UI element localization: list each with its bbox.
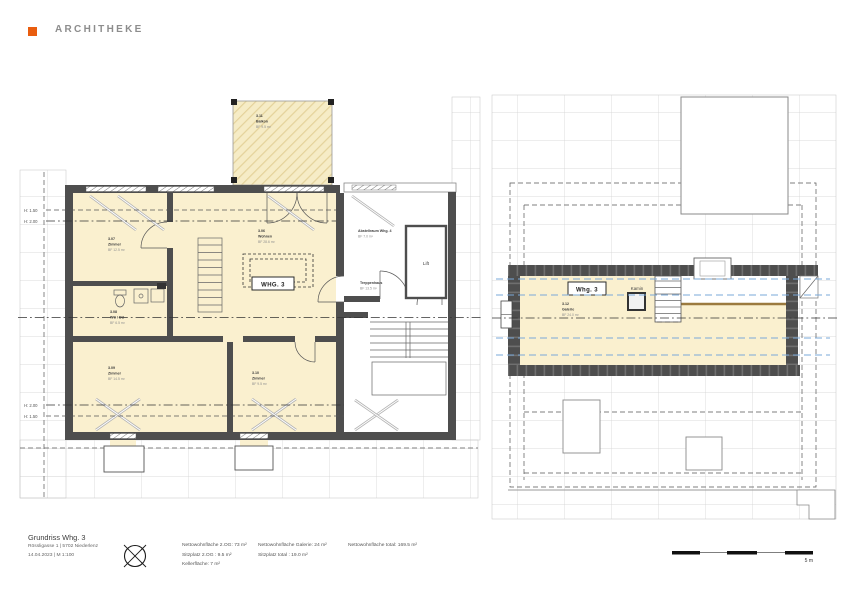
height-mark: H: 2.00 <box>24 219 38 224</box>
summary-line: Sitzplatz total : 19.0 m² <box>258 551 327 561</box>
room-label-308-num: 3.08 <box>110 310 117 314</box>
room-label-treppenhaus-area: BF 13.5 m² <box>360 287 378 291</box>
room-label-309-num: 3.09 <box>108 366 115 370</box>
room-label-308-area: BF 6.5 m² <box>110 321 126 325</box>
room-label-310-name: Zimmer <box>252 377 266 381</box>
area-summary-col2: Nettowohnfläche Galerie: 24 m² Sitzplatz… <box>258 541 327 560</box>
room-label-balkon-name: Balkon <box>256 120 268 124</box>
room-label-310-num: 3.10 <box>252 371 259 375</box>
height-mark: H: 1.50 <box>24 208 38 213</box>
scale-bar-label: 5 m <box>805 558 813 564</box>
unit-label-left: WHG. 3 <box>252 277 294 290</box>
gallery-stairs-opening <box>655 276 681 322</box>
unit-box-left-text: WHG. 3 <box>261 283 285 289</box>
sheet-title: Grundriss Whg. 3 <box>28 533 98 543</box>
room-label-312-name: Galerie <box>562 308 574 312</box>
dormer-box-top <box>681 97 788 214</box>
room-label-306-name: Wohnen <box>258 235 272 239</box>
room-label-abstellraum-area: BF 7.0 m² <box>358 235 374 239</box>
summary-line: Sitzplatz 2.OG : 9.5 m² <box>182 551 247 561</box>
room-label-abstellraum-name: Abstellraum Whg. 4 <box>358 229 392 233</box>
room-label-309-area: BF 14.5 m² <box>108 377 126 381</box>
summary-line: Nettowohnfläche total: 169.5 m² <box>348 541 417 551</box>
room-label-310-area: BF 9.5 m² <box>252 382 268 386</box>
room-label-treppenhaus-name: Treppenhaus <box>360 281 382 285</box>
room-label-balkon-area: BF 9.5 m² <box>256 125 272 129</box>
lift-shaft: Lift <box>406 226 446 298</box>
room-label-312-area: BF 24.0 m² <box>562 313 580 317</box>
kamin-label: Kamin <box>631 286 644 291</box>
unit-box-right-text: Whg. 3 <box>576 288 598 294</box>
room-label-balkon-num: 3.11 <box>256 114 263 118</box>
balcony: 3.11 Balkon BF 9.5 m² <box>231 99 334 185</box>
room-label-309-name: Zimmer <box>108 372 122 376</box>
north-compass-icon <box>120 541 150 576</box>
drawing-sheet: ARCHITHEKE <box>0 0 841 595</box>
room-label-307-area: BF 12.5 m² <box>108 248 126 252</box>
room-label-307-num: 3.07 <box>108 237 115 241</box>
title-block: Grundriss Whg. 3 Rössligasse 1 | 5702 Ni… <box>28 533 98 560</box>
plan-left: 3.11 Balkon BF 9.5 m² <box>18 97 482 498</box>
summary-line: Nettowohnfläche 2.OG: 73 m² <box>182 541 247 551</box>
scale-bar: 5 m <box>672 551 813 564</box>
room-label-308-name: WC / DU <box>110 316 125 320</box>
sheet-date-scale: 14.04.2023 | M 1:100 <box>28 552 98 561</box>
room-label-312-num: 3.12 <box>562 302 569 306</box>
height-mark: H: 2.00 <box>24 403 38 408</box>
room-label-lift: Lift <box>423 261 430 266</box>
room-label-306-area: BF 28.6 m² <box>258 240 276 244</box>
sheet-address: Rössligasse 1 | 5702 Niederlenz <box>28 543 98 552</box>
floor-plan-drawing: 3.11 Balkon BF 9.5 m² <box>0 0 841 595</box>
summary-line: Kellerfläche: 7 m² <box>182 560 247 570</box>
room-label-307-name: Zimmer <box>108 243 122 247</box>
height-mark: H: 1.50 <box>24 414 38 419</box>
kamin-symbol <box>628 293 645 310</box>
room-label-306-num: 3.06 <box>258 229 265 233</box>
summary-line: Nettowohnfläche Galerie: 24 m² <box>258 541 327 551</box>
gallery-band: Whg. 3 Kamin 3.12 Galerie BF 24.0 m² <box>492 258 838 376</box>
area-summary-col3: Nettowohnfläche total: 169.5 m² <box>348 541 417 551</box>
area-summary-col1: Nettowohnfläche 2.OG: 73 m² Sitzplatz 2.… <box>182 541 247 570</box>
plan-right: Whg. 3 Kamin 3.12 Galerie BF 24.0 m² <box>492 95 838 519</box>
